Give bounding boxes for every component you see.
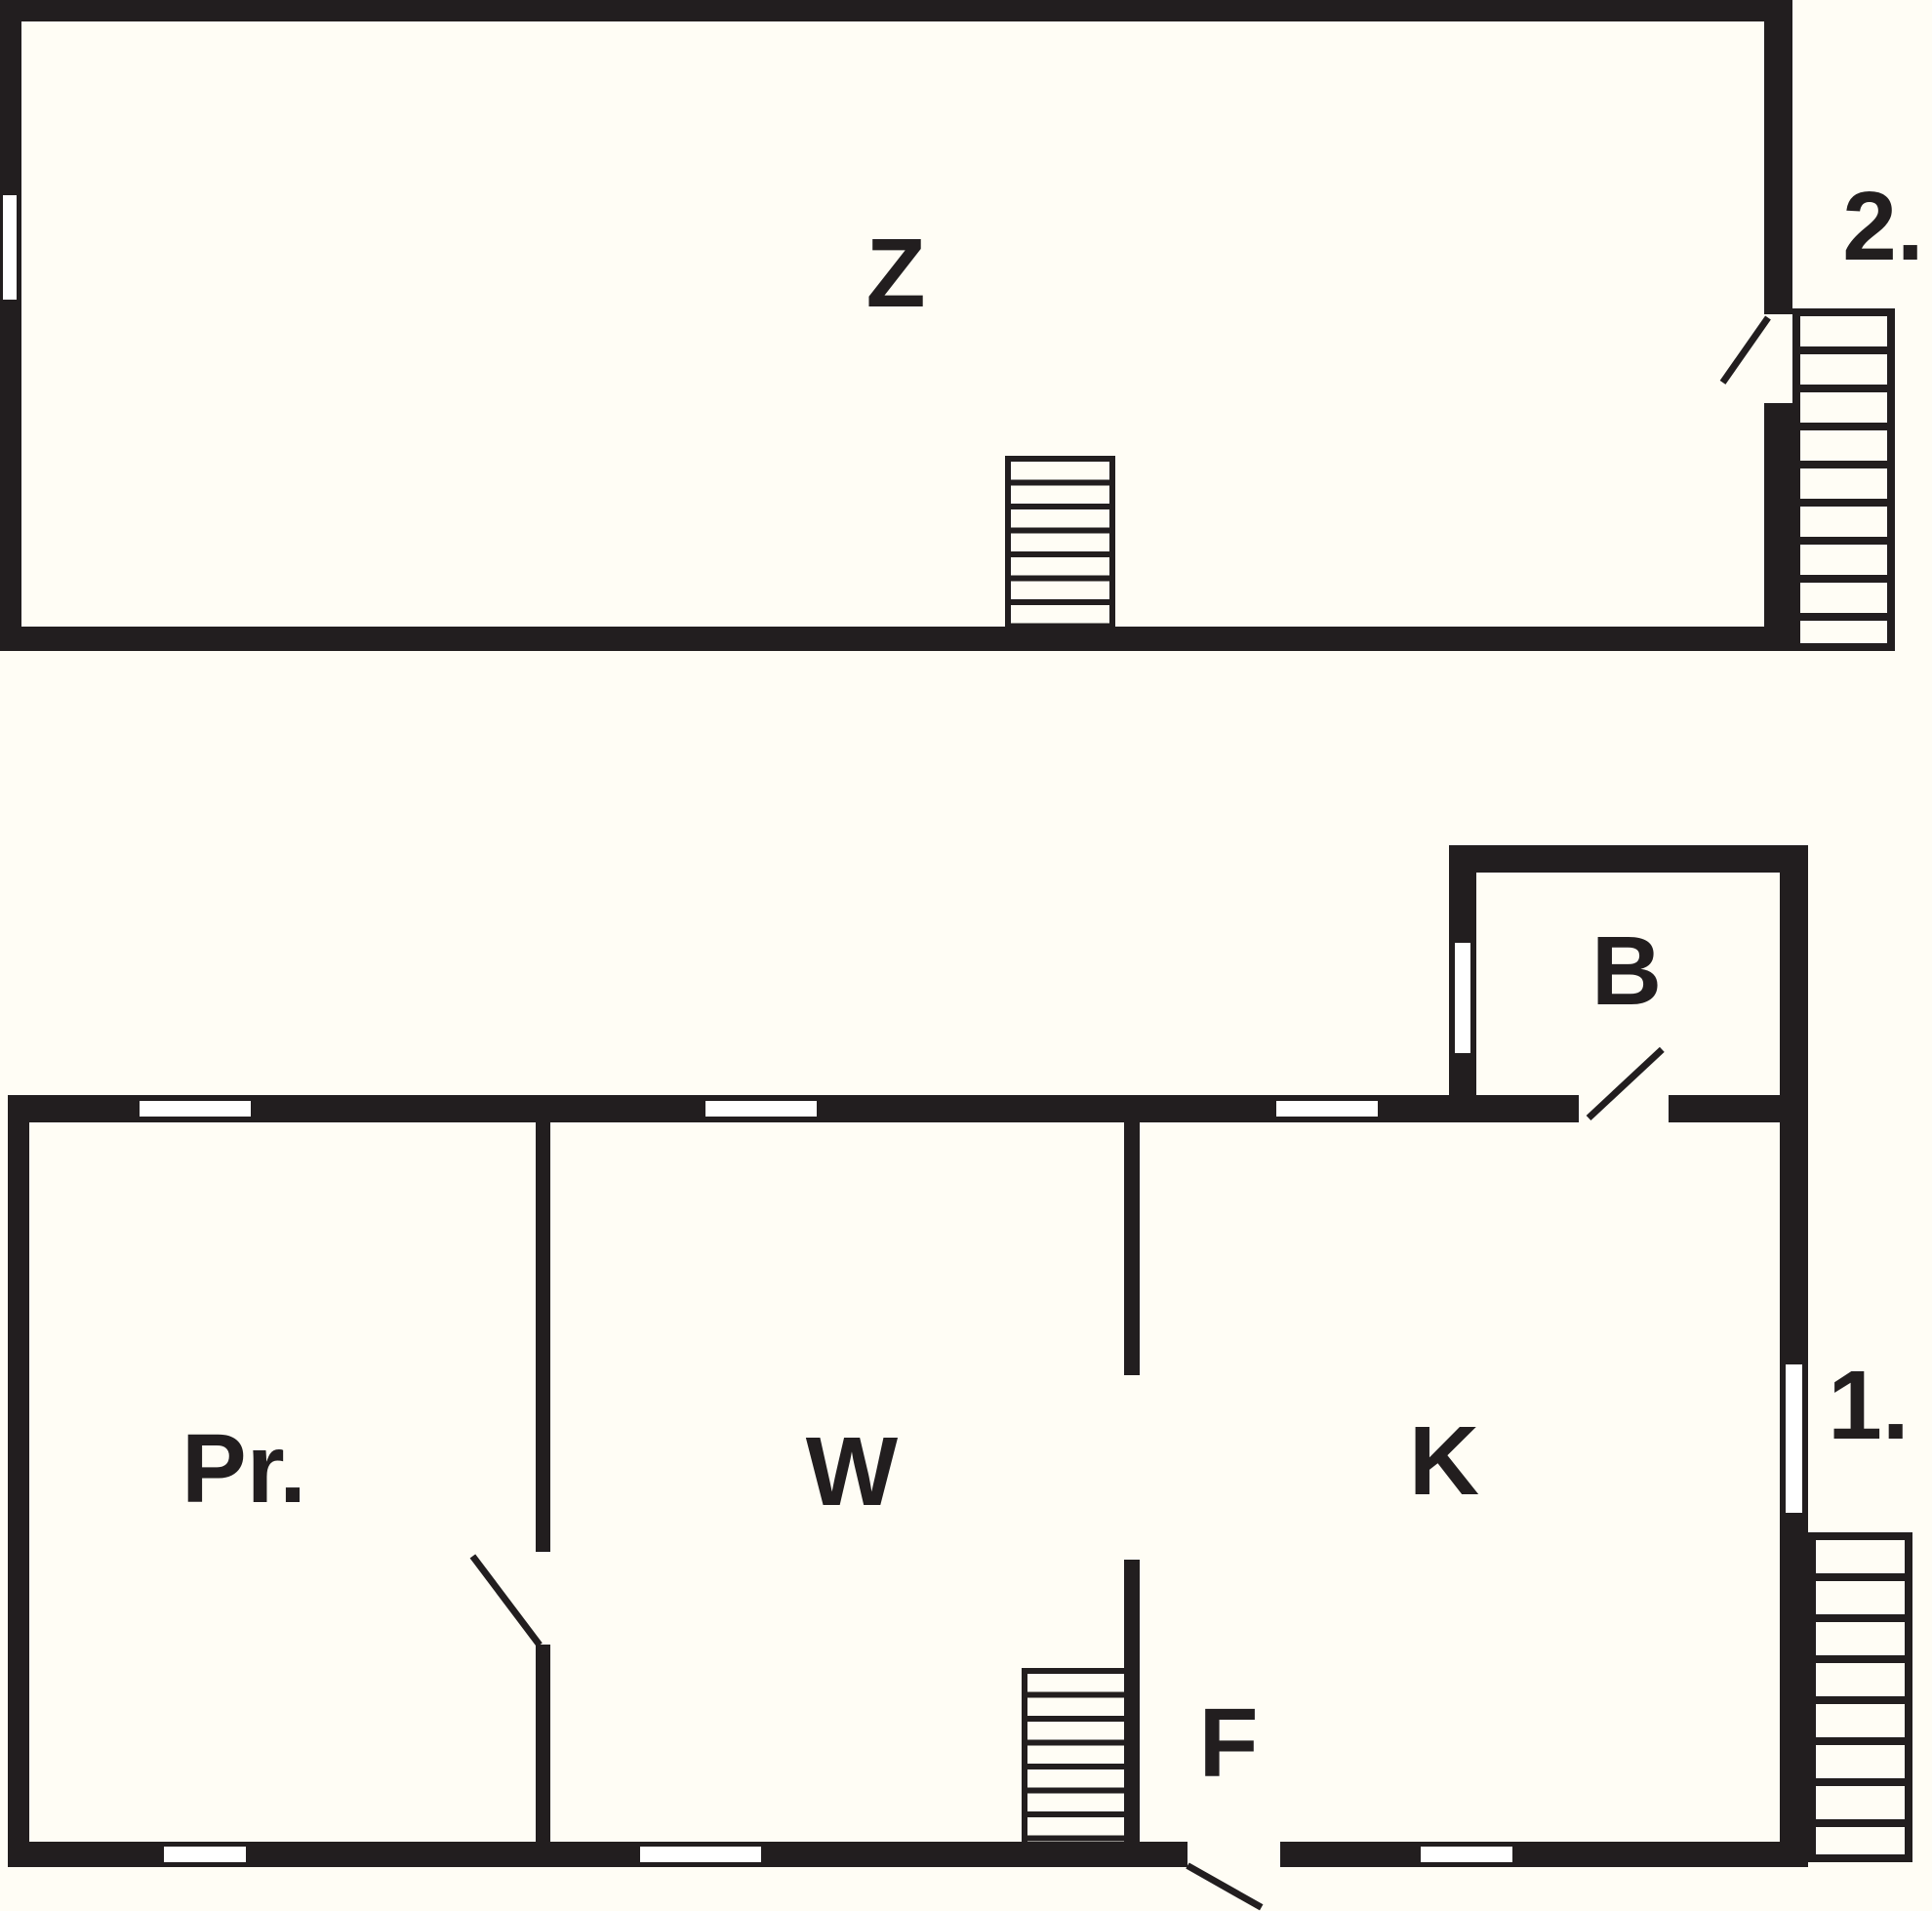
top-wall-window-k bbox=[1273, 1098, 1381, 1119]
bottom-wall-window-k bbox=[1418, 1844, 1515, 1865]
right-wall-window-k bbox=[1783, 1362, 1805, 1516]
room-b-window bbox=[1452, 940, 1473, 1056]
upper-exterior-stairs bbox=[1792, 308, 1895, 651]
floor-1-label: 1. bbox=[1828, 1357, 1909, 1454]
floor-plan-canvas: Z 2. Pr. W K F B 1. bbox=[0, 0, 1932, 1911]
upper-interior-stairs bbox=[1005, 456, 1115, 627]
room-z-label: Z bbox=[865, 224, 925, 322]
room-b-label: B bbox=[1591, 922, 1662, 1020]
bottom-wall-window-w bbox=[637, 1844, 764, 1865]
room-pr-label: Pr. bbox=[181, 1420, 306, 1518]
room-k-label: K bbox=[1409, 1412, 1479, 1510]
entrance-door-opening bbox=[1187, 1842, 1280, 1867]
partition-pr-w-upper bbox=[536, 1122, 550, 1552]
upper-left-wall-window bbox=[0, 192, 20, 303]
top-wall-window-pr bbox=[137, 1098, 254, 1119]
partition-w-k-lower bbox=[1124, 1560, 1140, 1842]
room-f-label: F bbox=[1198, 1694, 1258, 1792]
partition-pr-w-lower bbox=[536, 1645, 550, 1842]
upper-right-door-opening bbox=[1764, 314, 1792, 403]
entrance-door-swing bbox=[1186, 1862, 1263, 1910]
partition-w-k-upper bbox=[1124, 1122, 1140, 1375]
room-w-label: W bbox=[806, 1423, 898, 1521]
bottom-wall-window-pr bbox=[161, 1844, 249, 1865]
lower-exterior-stairs bbox=[1808, 1532, 1912, 1862]
lower-interior-stairs bbox=[1022, 1668, 1124, 1842]
top-wall-window-w bbox=[703, 1098, 820, 1119]
floor-2-label: 2. bbox=[1842, 178, 1923, 275]
